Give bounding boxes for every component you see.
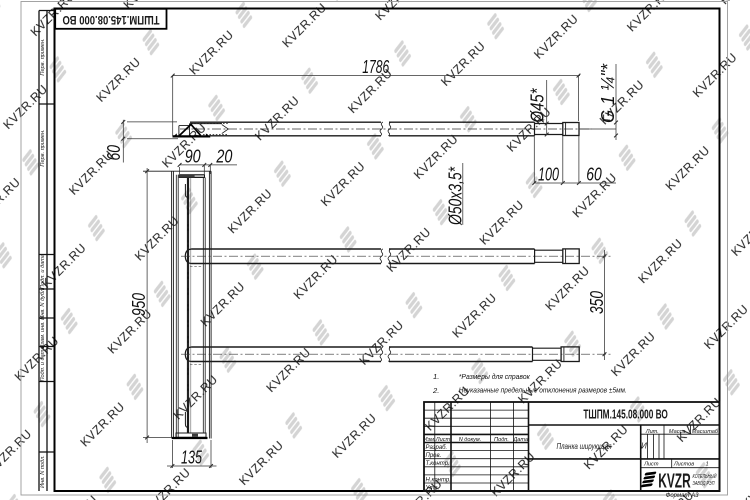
svg-text:ТШПМ.145.08.000 ВО: ТШПМ.145.08.000 ВО bbox=[62, 13, 159, 25]
svg-text:60: 60 bbox=[104, 145, 124, 161]
svg-text:Неуказанные предельные отклоне: Неуказанные предельные отклонения размер… bbox=[459, 386, 627, 395]
svg-text:Изм.: Изм. bbox=[424, 437, 436, 443]
svg-text:Масса: Масса bbox=[669, 429, 686, 435]
svg-text:Н.контр.: Н.контр. bbox=[426, 477, 451, 483]
svg-text:ЗАВОД РЭП: ЗАВОД РЭП bbox=[693, 481, 715, 487]
svg-text:Перв. примен.: Перв. примен. bbox=[40, 38, 46, 75]
svg-text:Ø45*: Ø45* bbox=[528, 88, 548, 124]
svg-text:ТШПМ.145.08.000 ВО: ТШПМ.145.08.000 ВО bbox=[583, 407, 668, 421]
svg-text:Подп.: Подп. bbox=[494, 437, 509, 443]
svg-text:Пров.: Пров. bbox=[426, 453, 442, 459]
svg-text:KVZR: KVZR bbox=[658, 470, 691, 492]
svg-text:Взам. инв. N: Взам. инв. N bbox=[40, 315, 46, 349]
svg-text:1: 1 bbox=[705, 462, 708, 468]
svg-text:И: И bbox=[641, 442, 647, 451]
svg-text:950: 950 bbox=[129, 293, 149, 316]
svg-text:Планка ширующая: Планка ширующая bbox=[557, 441, 612, 451]
svg-text:Лист: Лист bbox=[435, 437, 451, 443]
svg-text:Инв. N подл.: Инв. N подл. bbox=[40, 455, 46, 488]
svg-text:350: 350 bbox=[587, 291, 607, 314]
svg-text:Масштаб: Масштаб bbox=[692, 429, 719, 435]
svg-text:КОТЕЛЬНЫЙ: КОТЕЛЬНЫЙ bbox=[693, 472, 717, 480]
svg-text:Подп. и дата: Подп. и дата bbox=[40, 346, 46, 381]
svg-text:Ø50x3,5*: Ø50x3,5* bbox=[446, 166, 466, 226]
svg-text:Дата: Дата bbox=[512, 437, 528, 443]
svg-text:20: 20 bbox=[216, 146, 233, 166]
svg-text:1786: 1786 bbox=[362, 57, 390, 77]
svg-text:Подп. и дата: Подп. и дата bbox=[40, 254, 46, 289]
svg-text:100: 100 bbox=[538, 165, 559, 185]
svg-text:Листов: Листов bbox=[673, 462, 694, 468]
svg-text:90: 90 bbox=[185, 146, 201, 166]
svg-text:Разраб.: Разраб. bbox=[426, 445, 448, 451]
svg-text:Перв. примен.: Перв. примен. bbox=[40, 129, 46, 166]
svg-text:Лист: Лист bbox=[643, 462, 659, 468]
svg-text:N докум.: N докум. bbox=[459, 437, 482, 443]
svg-text:1.: 1. bbox=[433, 372, 439, 381]
svg-text:60: 60 bbox=[586, 165, 602, 185]
svg-text:G 1 ¼"*: G 1 ¼"* bbox=[598, 63, 618, 123]
svg-text:Т.контр.: Т.контр. bbox=[426, 461, 450, 467]
svg-text:Лит.: Лит. bbox=[645, 429, 659, 435]
svg-text:Утв.: Утв. bbox=[425, 485, 440, 491]
svg-text:135: 135 bbox=[181, 447, 203, 467]
svg-text:Инв. N дубл.: Инв. N дубл. bbox=[40, 287, 46, 319]
svg-text:2.: 2. bbox=[432, 386, 439, 395]
svg-text:*Размеры для справок: *Размеры для справок bbox=[459, 372, 530, 381]
svg-text:Формат А3: Формат А3 bbox=[666, 493, 699, 499]
